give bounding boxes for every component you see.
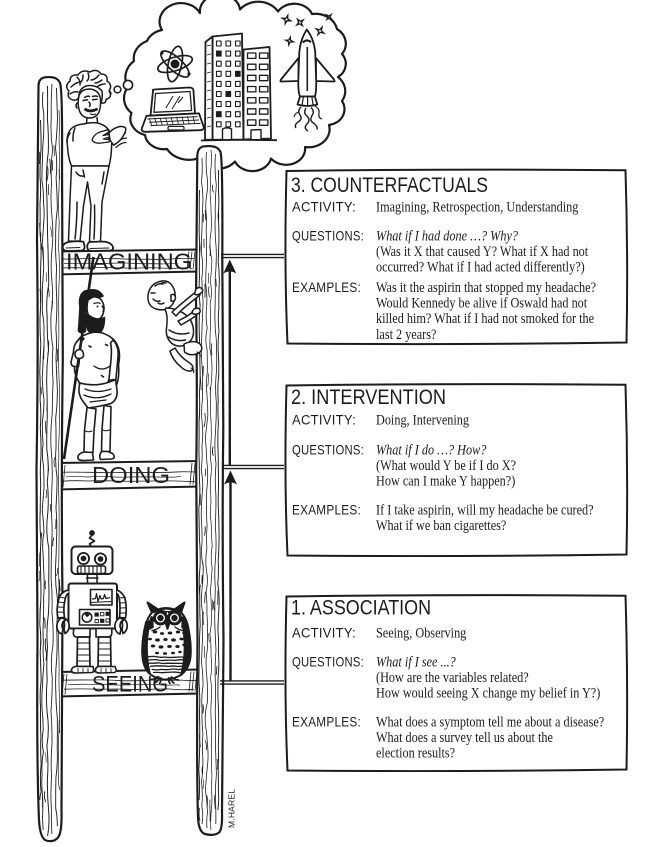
svg-text:What if I see ...?: What if I see ...? — [376, 655, 456, 671]
svg-text:Would Kennedy be alive if Oswa: Would Kennedy be alive if Oswald had not — [376, 296, 588, 312]
svg-text:(What would Y be if I do X?: (What would Y be if I do X? — [376, 458, 516, 474]
svg-text:EXAMPLES:: EXAMPLES: — [292, 714, 361, 730]
svg-text:DOING: DOING — [92, 462, 170, 488]
svg-text:EXAMPLES:: EXAMPLES: — [292, 502, 361, 518]
svg-text:election results?: election results? — [376, 746, 455, 762]
svg-text:M.HAREL: M.HAREL — [227, 789, 237, 828]
svg-text:ACTIVITY:: ACTIVITY: — [292, 625, 356, 641]
svg-text:occurred? What if I had acted: occurred? What if I had acted differentl… — [376, 260, 585, 276]
svg-text:What does a symptom tell me ab: What does a symptom tell me about a dise… — [376, 715, 604, 731]
svg-text:What if I do …? How?: What if I do …? How? — [376, 443, 487, 459]
svg-text:Imagining, Retrospection, Unde: Imagining, Retrospection, Understanding — [376, 200, 579, 216]
svg-text:What if I had done …? Why?: What if I had done …? Why? — [376, 229, 518, 245]
svg-text:last 2 years?: last 2 years? — [376, 327, 437, 343]
svg-text:How can I make Y happen?): How can I make Y happen?) — [376, 474, 515, 490]
svg-text:IMAGINING: IMAGINING — [66, 249, 192, 275]
svg-text:What does a survey tell us abo: What does a survey tell us about the — [376, 730, 553, 746]
svg-text:(How are the variables related: (How are the variables related? — [376, 670, 529, 686]
svg-text:Seeing, Observing: Seeing, Observing — [376, 626, 467, 642]
svg-text:Doing, Intervening: Doing, Intervening — [376, 413, 469, 429]
svg-text:3. COUNTERFACTUALS: 3. COUNTERFACTUALS — [291, 174, 488, 197]
svg-text:QUESTIONS:: QUESTIONS: — [292, 654, 364, 670]
svg-text:QUESTIONS:: QUESTIONS: — [292, 442, 364, 458]
svg-text:QUESTIONS:: QUESTIONS: — [292, 228, 364, 244]
svg-text:2. INTERVENTION: 2. INTERVENTION — [291, 386, 446, 409]
svg-text:EXAMPLES:: EXAMPLES: — [292, 279, 361, 295]
svg-text:How would seeing X change my b: How would seeing X change my belief in Y… — [376, 686, 600, 702]
svg-text:1. ASSOCIATION: 1. ASSOCIATION — [291, 597, 431, 620]
svg-text:What if we ban cigarettes?: What if we ban cigarettes? — [376, 518, 507, 534]
svg-text:killed him? What if I had not: killed him? What if I had not smoked for… — [376, 311, 594, 327]
svg-text:If I take aspirin, will my hea: If I take aspirin, will my headache be c… — [376, 503, 594, 519]
svg-text:Was it the aspirin that stoppe: Was it the aspirin that stopped my heada… — [376, 280, 596, 296]
svg-text:ACTIVITY:: ACTIVITY: — [292, 412, 356, 428]
svg-text:(Was it X that caused Y? What: (Was it X that caused Y? What if X had n… — [376, 244, 589, 260]
svg-text:ACTIVITY:: ACTIVITY: — [292, 199, 356, 215]
